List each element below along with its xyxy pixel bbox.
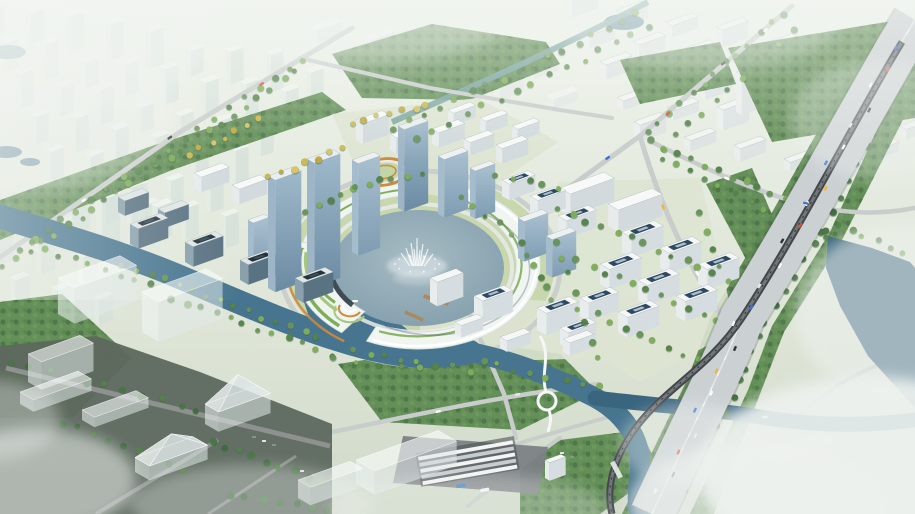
aerial-masterplan-rendering	[0, 0, 915, 514]
left-haze	[0, 0, 240, 300]
rendering-canvas	[0, 0, 915, 514]
